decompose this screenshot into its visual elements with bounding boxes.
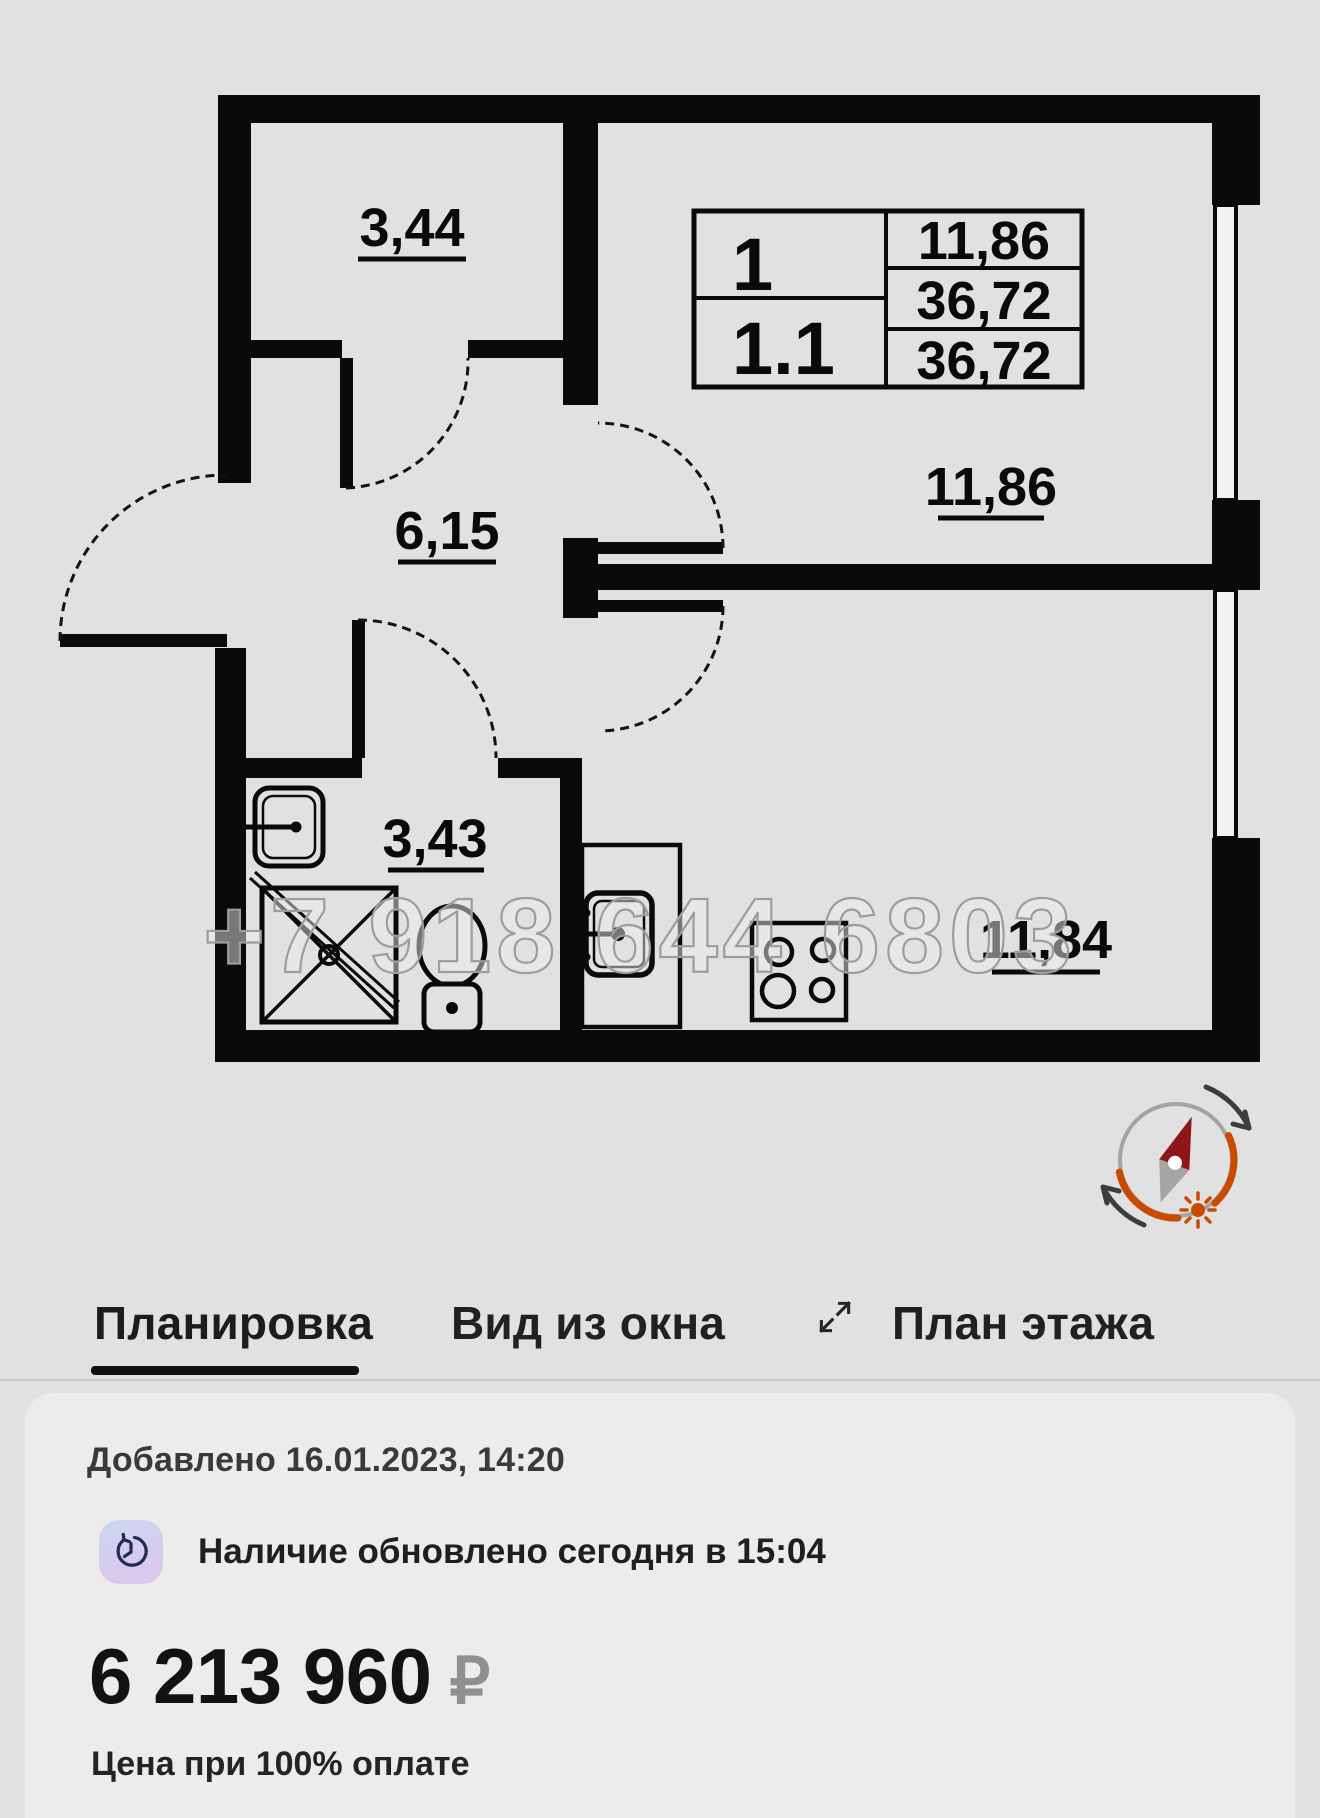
expand-icon[interactable] (812, 1297, 858, 1337)
window-bedroom (1212, 205, 1260, 500)
floor-plan: 1 1.1 11,86 36,72 36,72 3,44 6,15 3,43 1… (0, 0, 1320, 1260)
tabs-divider (0, 1379, 1320, 1381)
window-kitchen-living (1212, 590, 1260, 838)
price-value: 6 213 960 (89, 1631, 432, 1722)
bathroom-sink (238, 788, 323, 866)
watermark-phone: +7 918 644 6803 (203, 877, 1077, 995)
table-living-area: 11,86 (918, 211, 1050, 271)
added-date: Добавлено 16.01.2023, 14:20 (87, 1441, 565, 1480)
gallery-tabs: Планировка Вид из окна План этажа (0, 1280, 1320, 1380)
table-total-area: 36,72 (916, 271, 1051, 331)
availability-text: Наличие обновлено сегодня в 15:04 (198, 1532, 826, 1572)
table-declared-area: 36,72 (916, 331, 1051, 391)
compass-widget[interactable] (1103, 1087, 1249, 1227)
label-bedroom: 11,86 (925, 457, 1057, 517)
listing-info-card: Добавлено 16.01.2023, 14:20 Наличие обно… (25, 1393, 1295, 1818)
label-bathroom: 3,43 (382, 809, 487, 869)
clock-badge (99, 1520, 163, 1584)
table-unit-number: 1.1 (732, 307, 835, 390)
price-note: Цена при 100% оплате (91, 1745, 469, 1784)
label-storage: 3,44 (359, 198, 464, 258)
clock-refresh-icon (112, 1533, 150, 1571)
label-hall: 6,15 (394, 501, 499, 561)
tab-window-view[interactable]: Вид из окна (451, 1296, 725, 1350)
door-leaves (60, 358, 723, 758)
table-rooms-count: 1 (732, 223, 773, 306)
door-arcs (60, 358, 723, 758)
price-row: 6 213 960 ₽ (89, 1631, 490, 1722)
tab-floor-plan[interactable]: План этажа (892, 1296, 1154, 1350)
sun-icon (1181, 1193, 1215, 1227)
area-info-values: 1 1.1 11,86 36,72 36,72 (732, 211, 1052, 391)
availability-row: Наличие обновлено сегодня в 15:04 (99, 1520, 826, 1584)
tab-layout[interactable]: Планировка (94, 1296, 373, 1350)
price-currency: ₽ (450, 1644, 491, 1719)
active-tab-underline (91, 1366, 359, 1375)
